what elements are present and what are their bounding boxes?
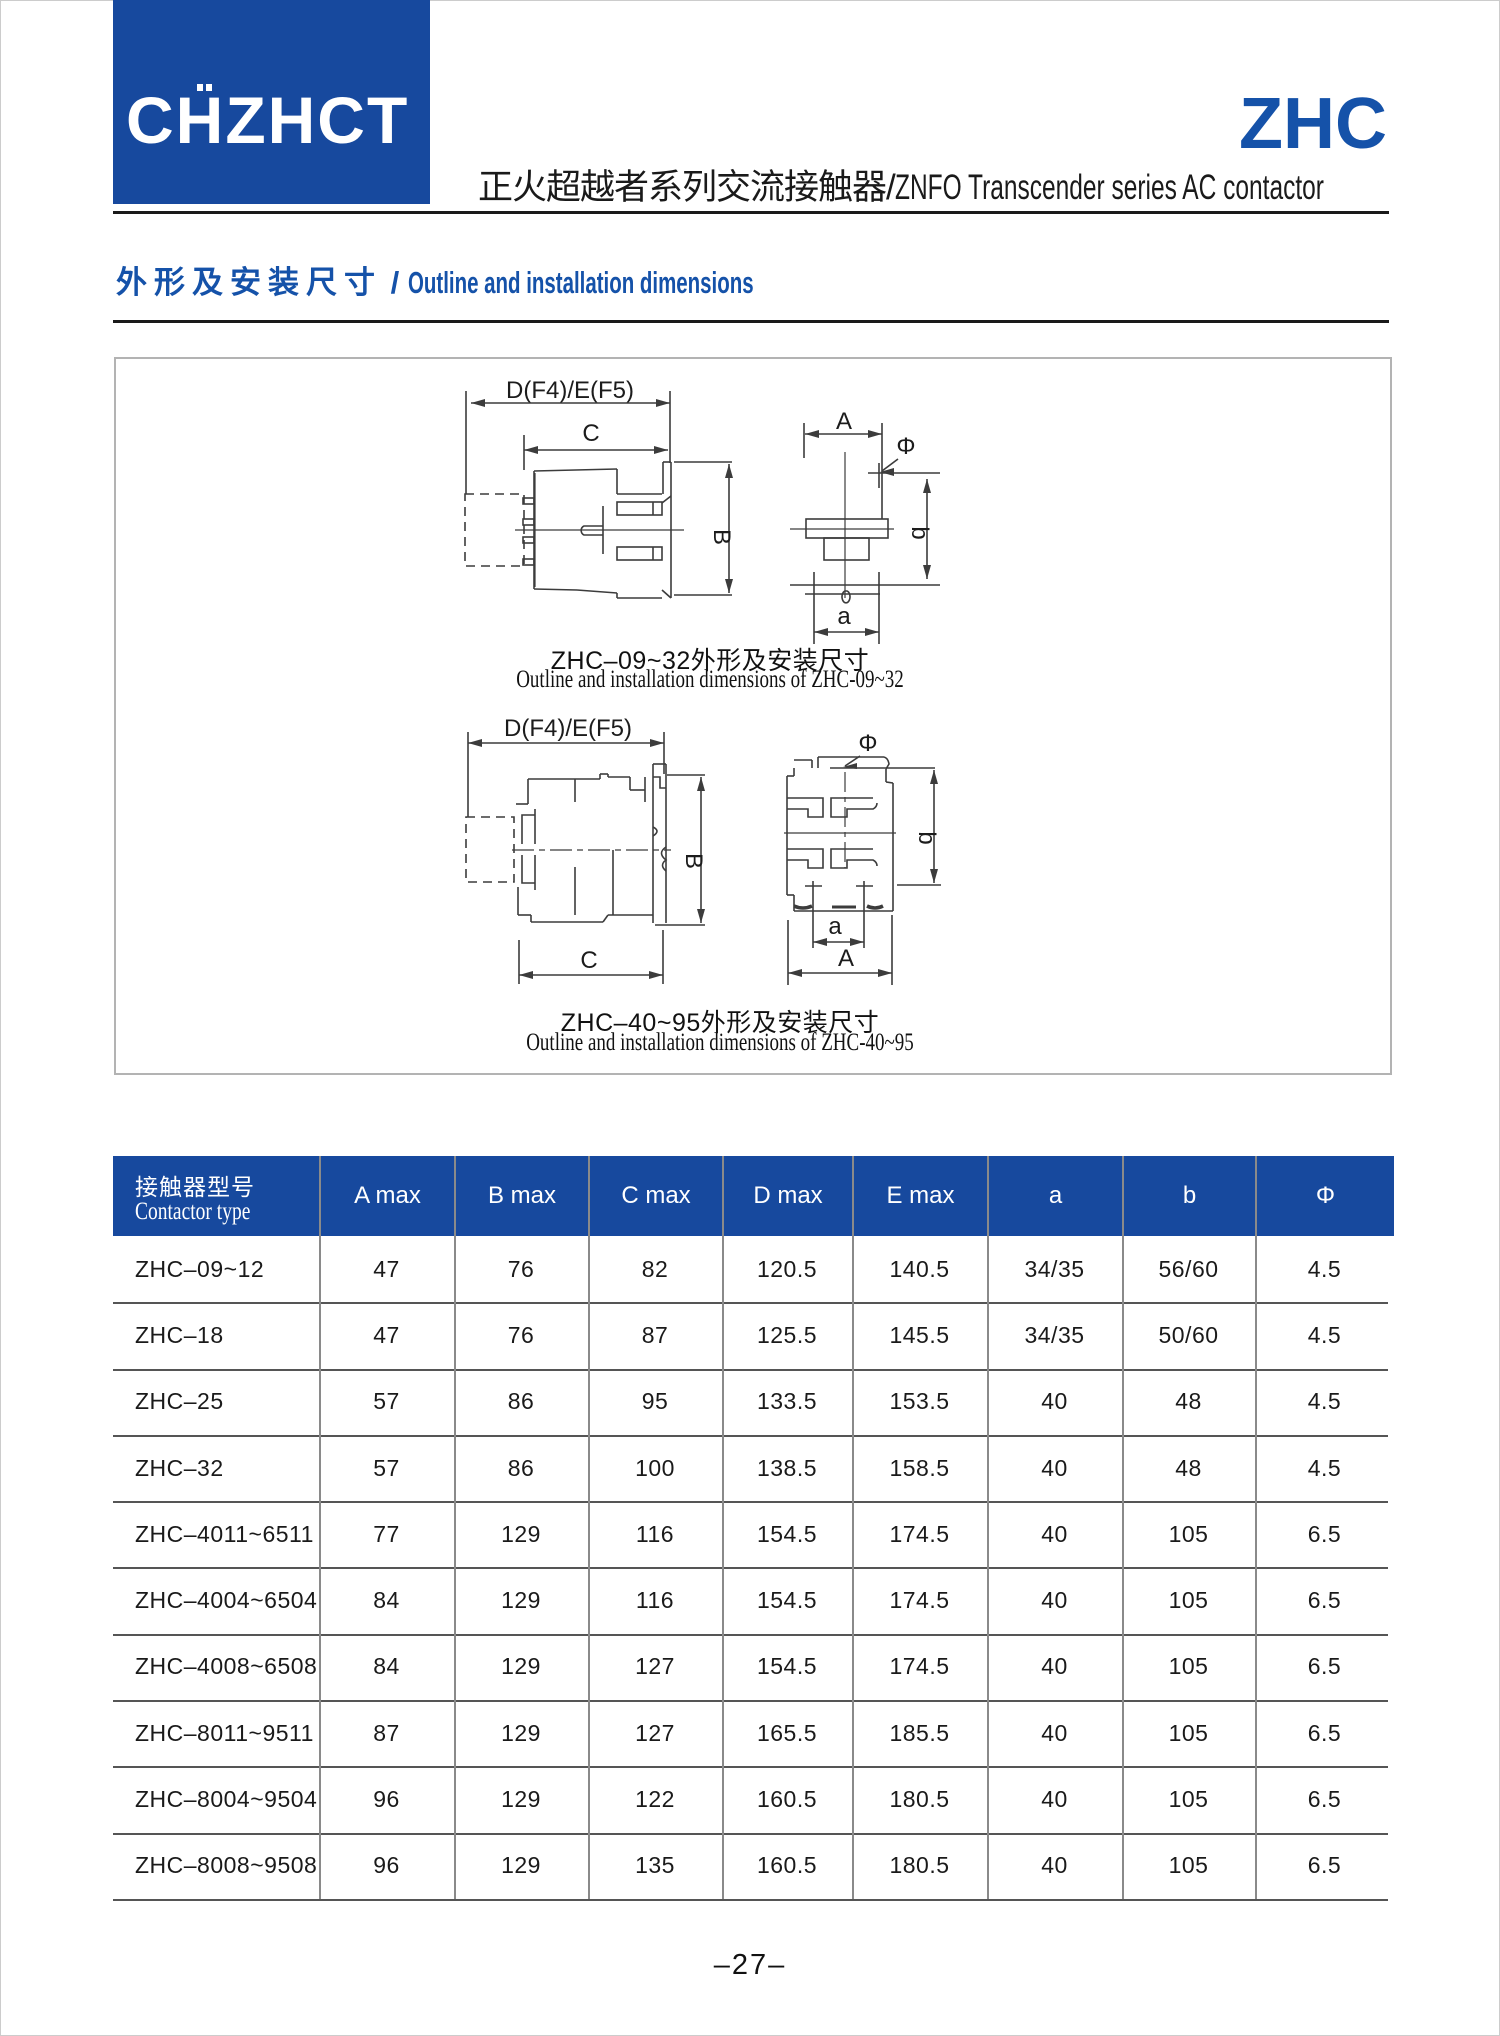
svg-text:A: A: [838, 945, 854, 972]
svg-text:a: a: [837, 603, 851, 630]
svg-text:a: a: [828, 913, 842, 940]
svg-text:A: A: [836, 408, 852, 435]
svg-text:B: B: [680, 853, 707, 869]
svg-text:C: C: [580, 947, 597, 974]
svg-text:Φ: Φ: [896, 433, 915, 460]
svg-text:C: C: [582, 420, 599, 447]
svg-text:b: b: [906, 526, 933, 539]
svg-text:b: b: [913, 831, 940, 844]
svg-text:D(F4)/E(F5): D(F4)/E(F5): [504, 715, 632, 742]
svg-text:Φ: Φ: [858, 730, 877, 757]
svg-text:D(F4)/E(F5): D(F4)/E(F5): [506, 377, 634, 404]
svg-text:B: B: [708, 529, 735, 545]
